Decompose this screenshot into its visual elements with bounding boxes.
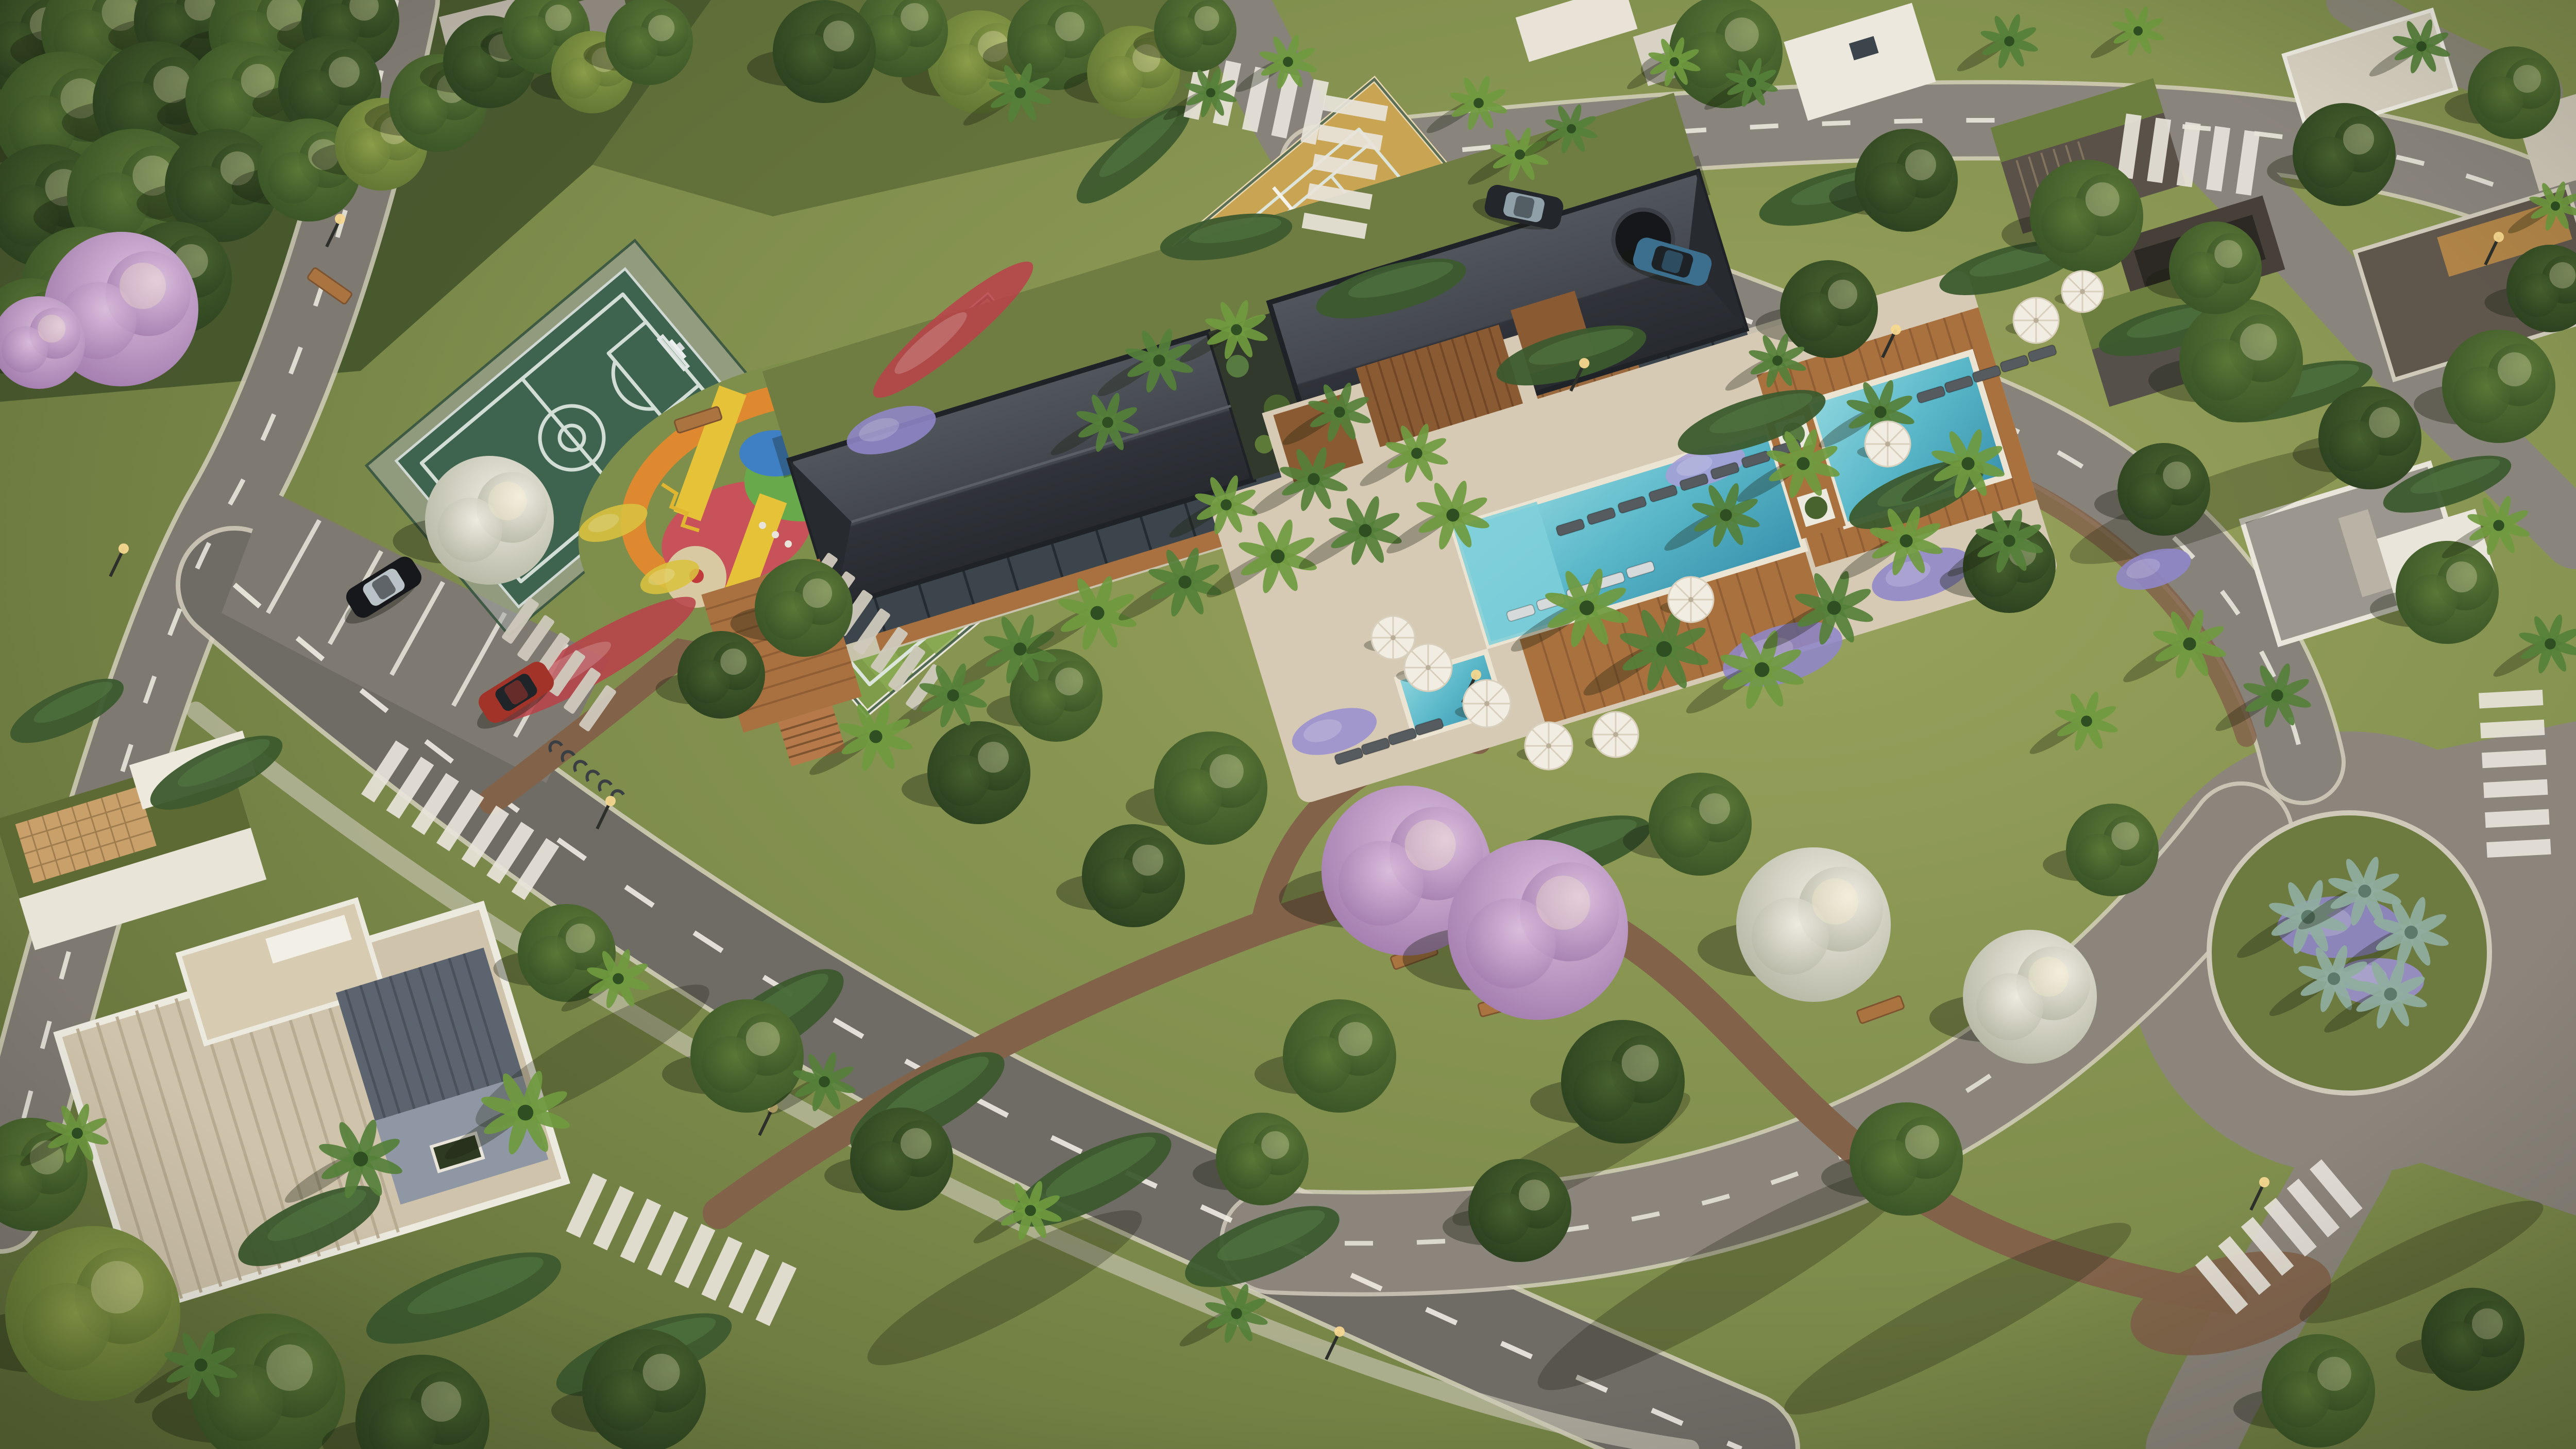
aerial-render-canvas: [0, 0, 2576, 1449]
scene-svg: [0, 0, 2576, 1449]
vignette: [0, 0, 2576, 1449]
